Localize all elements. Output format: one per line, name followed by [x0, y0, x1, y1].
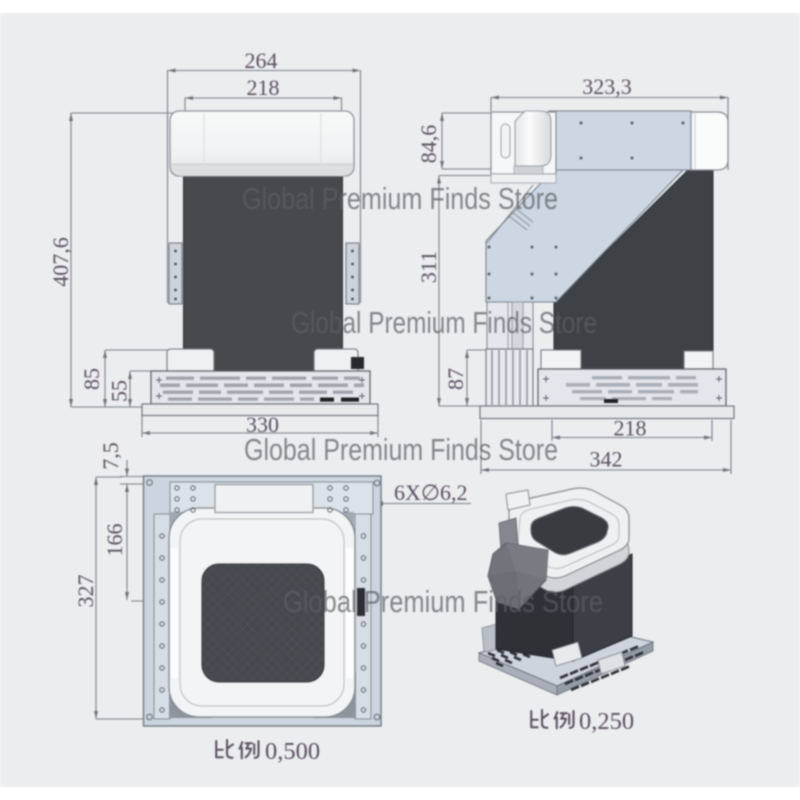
svg-text:87: 87	[443, 368, 468, 390]
svg-text:327: 327	[73, 575, 98, 608]
svg-text:166: 166	[102, 524, 127, 557]
svg-text:7,5: 7,5	[98, 442, 123, 470]
svg-text:218: 218	[614, 416, 647, 441]
svg-text:342: 342	[590, 447, 623, 472]
svg-text:55: 55	[107, 380, 132, 402]
svg-text:323,3: 323,3	[582, 74, 632, 99]
svg-text:Global Premium Finds Store: Global Premium Finds Store	[242, 181, 558, 216]
svg-text:84,6: 84,6	[416, 125, 441, 164]
svg-text:85: 85	[79, 368, 104, 390]
svg-text:Global Premium Finds Store: Global Premium Finds Store	[291, 305, 597, 340]
svg-text:264: 264	[245, 48, 278, 73]
svg-text:0,500: 0,500	[265, 738, 320, 765]
svg-text:6X∅6,2: 6X∅6,2	[394, 480, 468, 505]
svg-text:Global Premium Finds Store: Global Premium Finds Store	[244, 432, 558, 467]
svg-text:218: 218	[247, 75, 280, 100]
svg-text:0,250: 0,250	[579, 708, 634, 735]
svg-text:407,6: 407,6	[48, 237, 73, 287]
svg-text:311: 311	[416, 251, 441, 283]
svg-text:Global Premium Finds Store: Global Premium Finds Store	[283, 584, 603, 619]
